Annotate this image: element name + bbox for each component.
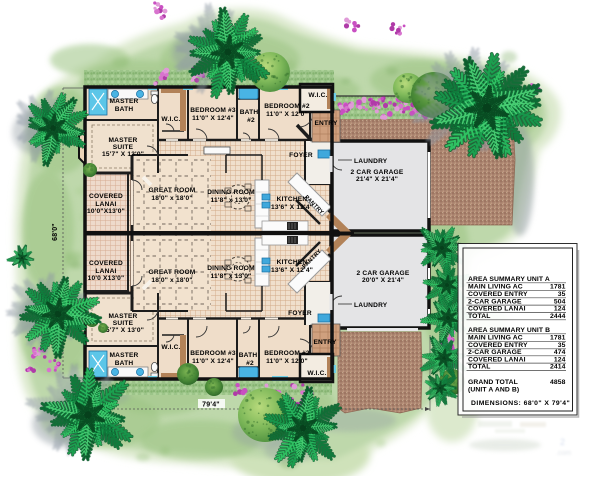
svg-text:SUITE: SUITE <box>113 320 134 327</box>
svg-text:MASTER: MASTER <box>108 313 137 320</box>
svg-text:68'0": 68'0" <box>52 223 59 241</box>
svg-text:(UNIT A AND B): (UNIT A AND B) <box>468 386 519 393</box>
svg-text:GREAT ROOM: GREAT ROOM <box>149 187 196 194</box>
svg-text:124: 124 <box>554 306 566 313</box>
svg-text:ENTRY: ENTRY <box>314 120 338 127</box>
svg-text:BEDROOM #2: BEDROOM #2 <box>264 103 310 110</box>
svg-text:DINING ROOM: DINING ROOM <box>207 189 255 196</box>
svg-text:LAUNDRY: LAUNDRY <box>354 158 388 165</box>
svg-text:2444: 2444 <box>550 313 566 320</box>
svg-text:LANAI: LANAI <box>95 268 116 275</box>
svg-text:#2: #2 <box>246 360 254 367</box>
svg-text:11'0" X 12'0": 11'0" X 12'0" <box>266 111 308 118</box>
svg-text:BATH: BATH <box>240 109 259 116</box>
svg-text:504: 504 <box>554 298 566 305</box>
svg-text:20'0" X 21'4": 20'0" X 21'4" <box>362 277 404 284</box>
svg-text:BEDROOM #3: BEDROOM #3 <box>190 107 236 114</box>
svg-text:2-CAR GARAGE: 2-CAR GARAGE <box>468 349 522 356</box>
svg-text:2 CAR GARAGE: 2 CAR GARAGE <box>351 169 404 176</box>
svg-text:2414: 2414 <box>550 364 566 371</box>
svg-text:#2: #2 <box>247 117 255 124</box>
svg-text:FOYER: FOYER <box>288 310 312 317</box>
svg-text:LAUNDRY: LAUNDRY <box>354 302 388 309</box>
svg-text:MASTER: MASTER <box>108 137 137 144</box>
svg-text:15'7" X 13'0": 15'7" X 13'0" <box>102 151 144 158</box>
svg-text:COVERED ENTRY: COVERED ENTRY <box>468 342 528 349</box>
svg-text:11'8" x 13'0": 11'8" x 13'0" <box>211 197 252 204</box>
svg-text:KITCHEN: KITCHEN <box>277 196 308 203</box>
svg-text:474: 474 <box>554 349 566 356</box>
svg-text:21'4" X 21'4": 21'4" X 21'4" <box>356 176 398 183</box>
svg-text:13'6" X 12'4": 13'6" X 12'4" <box>271 204 313 211</box>
svg-text:15'7" X 13'0": 15'7" X 13'0" <box>102 327 144 334</box>
svg-text:MASTER: MASTER <box>109 98 138 105</box>
svg-text:AREA SUMMARY UNIT B: AREA SUMMARY UNIT B <box>468 327 550 334</box>
svg-text:FOYER: FOYER <box>289 152 313 159</box>
svg-text:DIMENSIONS: 68'0" X 79'4": DIMENSIONS: 68'0" X 79'4" <box>471 400 570 407</box>
svg-text:COVERED: COVERED <box>89 260 123 267</box>
svg-text:124: 124 <box>554 356 566 363</box>
svg-text:GRAND TOTAL: GRAND TOTAL <box>468 379 518 386</box>
svg-text:GREAT ROOM: GREAT ROOM <box>149 269 196 276</box>
svg-text:BATH: BATH <box>115 360 134 367</box>
svg-text:4858: 4858 <box>550 379 566 386</box>
svg-text:BATH: BATH <box>115 106 134 113</box>
svg-text:35: 35 <box>558 291 566 298</box>
svg-text:COVERED LANAI: COVERED LANAI <box>468 306 526 313</box>
svg-text:.com: .com <box>556 450 571 457</box>
svg-text:79'4": 79'4" <box>202 402 220 409</box>
svg-text:TOTAL: TOTAL <box>468 364 491 371</box>
svg-text:11'0" X 12'4": 11'0" X 12'4" <box>192 358 234 365</box>
svg-text:2-CAR GARAGE: 2-CAR GARAGE <box>468 298 522 305</box>
svg-text:SUITE: SUITE <box>113 144 134 151</box>
svg-text:MASTER: MASTER <box>109 352 138 359</box>
svg-text:AREA SUMMARY UNIT A: AREA SUMMARY UNIT A <box>468 276 550 283</box>
svg-text:18'0" x 18'0": 18'0" x 18'0" <box>151 195 192 202</box>
svg-text:11'8" x 13'0": 11'8" x 13'0" <box>211 273 252 280</box>
svg-text:BEDROOM #3: BEDROOM #3 <box>190 350 236 357</box>
svg-text:TOTAL: TOTAL <box>468 313 491 320</box>
svg-text:BEDROOM #2: BEDROOM #2 <box>264 350 310 357</box>
svg-text:W.I.C.: W.I.C. <box>161 344 180 351</box>
svg-text:ENTRY: ENTRY <box>313 339 337 346</box>
svg-text:W.I.C.: W.I.C. <box>307 370 326 377</box>
svg-text:11'0" X 12'4": 11'0" X 12'4" <box>192 115 234 122</box>
svg-text:18'0" x 18'0": 18'0" x 18'0" <box>151 277 192 284</box>
svg-text:1781: 1781 <box>550 284 566 291</box>
svg-text:W.I.C.: W.I.C. <box>308 92 327 99</box>
svg-text:MAIN LIVING AC: MAIN LIVING AC <box>468 284 523 291</box>
svg-text:10'0"X13'0": 10'0"X13'0" <box>87 208 125 215</box>
svg-text:COVERED: COVERED <box>89 193 123 200</box>
svg-text:LANAI: LANAI <box>95 201 116 208</box>
svg-text:COVERED ENTRY: COVERED ENTRY <box>468 291 528 298</box>
svg-text:2 CAR GARAGE: 2 CAR GARAGE <box>357 270 410 277</box>
svg-text:2: 2 <box>560 437 565 447</box>
svg-text:DINING ROOM: DINING ROOM <box>207 265 255 272</box>
svg-text:1781: 1781 <box>550 335 566 342</box>
svg-text:BATH: BATH <box>239 352 258 359</box>
svg-text:COVERED LANAI: COVERED LANAI <box>468 356 526 363</box>
svg-text:MAIN LIVING AC: MAIN LIVING AC <box>468 335 523 342</box>
svg-text:10'0 X13'0": 10'0 X13'0" <box>88 275 125 282</box>
svg-text:35: 35 <box>558 342 566 349</box>
svg-text:W.I.C.: W.I.C. <box>161 116 180 123</box>
svg-text:11'0" X 12'0": 11'0" X 12'0" <box>266 358 308 365</box>
